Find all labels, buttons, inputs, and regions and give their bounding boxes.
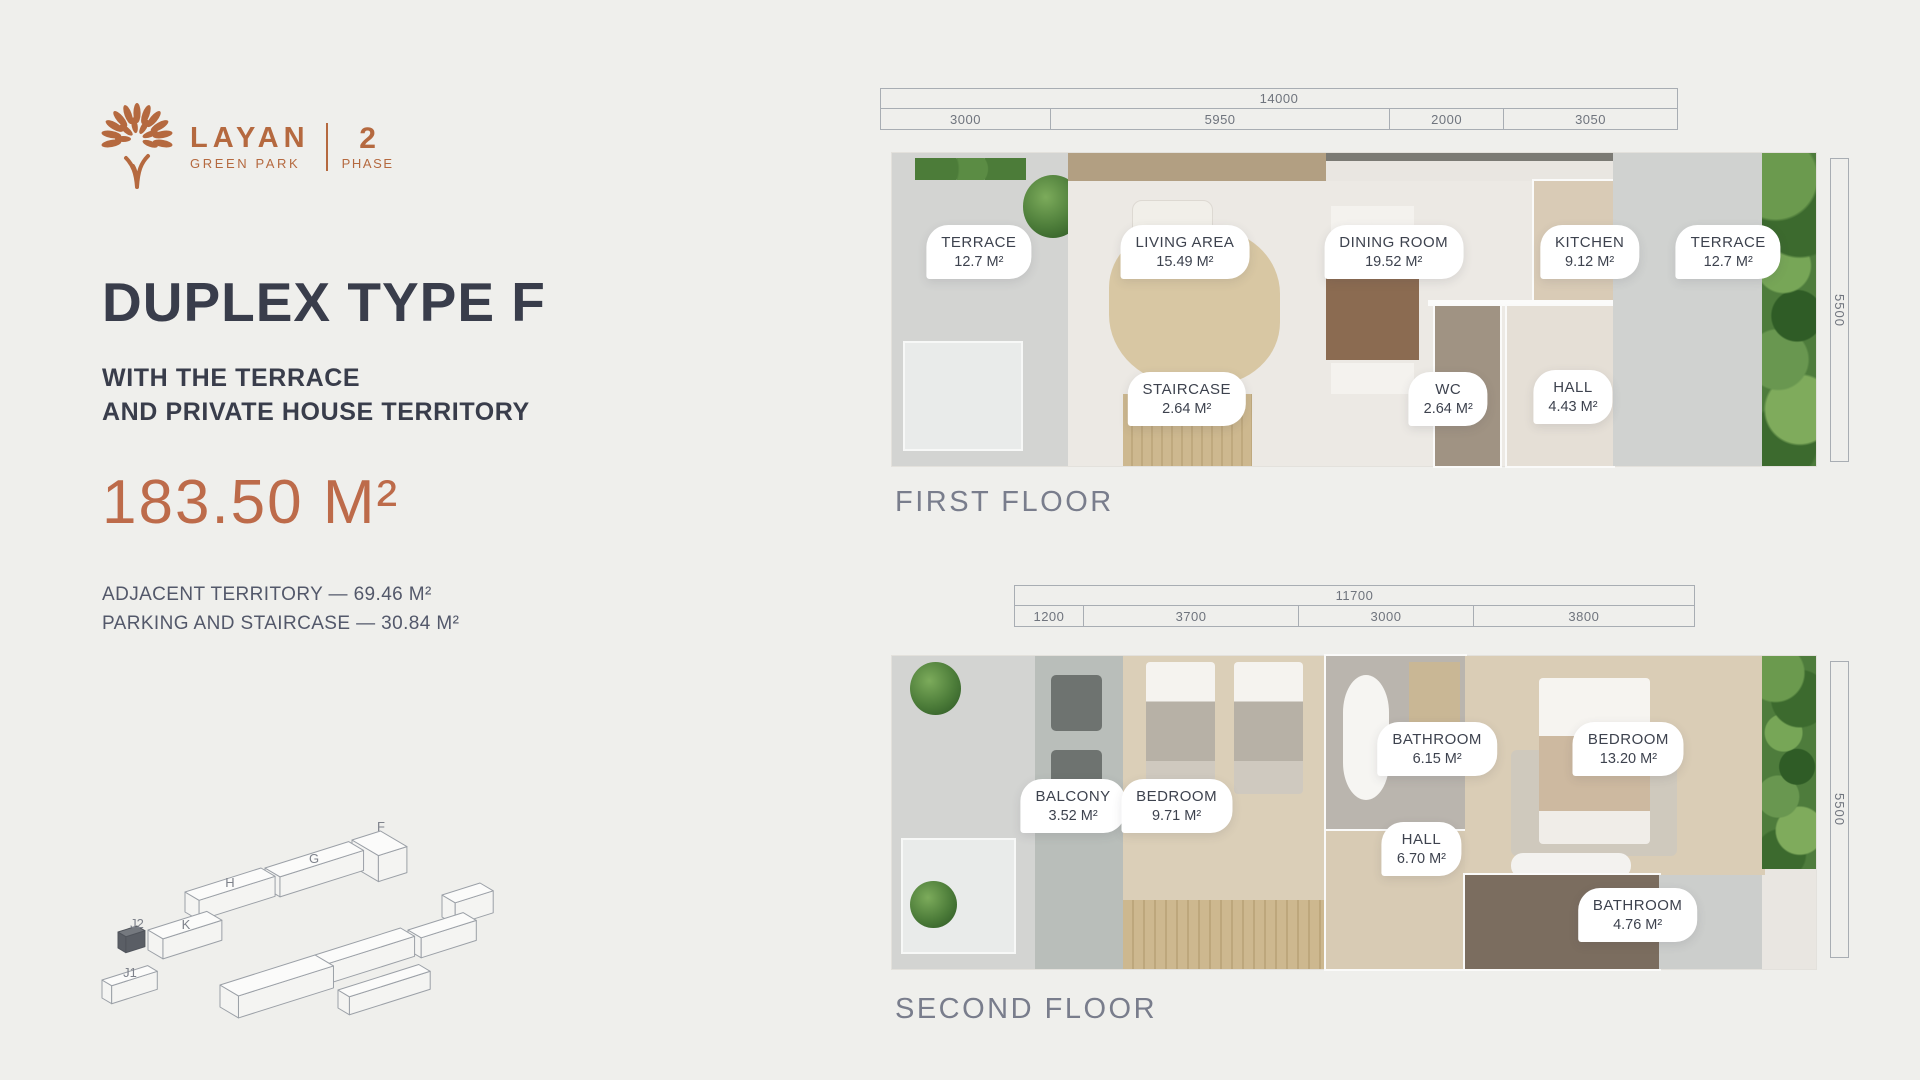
room-name: WC: [1424, 381, 1473, 398]
phase-number: 2: [359, 124, 376, 154]
tree-icon: [100, 103, 174, 191]
room-label: LIVING AREA 15.49 M²: [1120, 225, 1249, 279]
site-building-label: F: [377, 819, 385, 834]
room-area: 4.76 M²: [1593, 917, 1683, 933]
room-label: WC 2.64 M²: [1409, 372, 1488, 426]
site-building-label: J2: [130, 916, 144, 931]
area-details: ADJACENT TERRITORY — 69.46 M² PARKING AN…: [102, 580, 702, 638]
brand-subtitle: GREEN PARK: [190, 156, 310, 171]
room-name: LIVING AREA: [1135, 234, 1234, 251]
logo-divider: [326, 123, 328, 171]
room-name: STAIRCASE: [1143, 381, 1231, 398]
room-name: TERRACE: [941, 234, 1016, 251]
room-label: HALL 4.43 M²: [1533, 370, 1612, 424]
room-name: BATHROOM: [1392, 731, 1482, 748]
brand-title: LAYAN: [190, 123, 310, 153]
room-label: TERRACE 12.7 M²: [926, 225, 1031, 279]
dim-segment: 1200: [1014, 606, 1084, 627]
room-area: 4.43 M²: [1548, 399, 1597, 415]
room-name: KITCHEN: [1555, 234, 1624, 251]
room-area: 6.15 M²: [1392, 751, 1482, 767]
phase-label: PHASE: [342, 156, 394, 171]
room-name: BEDROOM: [1136, 788, 1217, 805]
page-title: DUPLEX TYPE F: [102, 270, 702, 334]
tree-trunk: [126, 156, 148, 187]
dim-segment: 3000: [880, 109, 1051, 130]
brand-name: LAYAN GREEN PARK: [190, 123, 310, 171]
room-label: BEDROOM 9.71 M²: [1121, 779, 1232, 833]
dim-segment: 3050: [1504, 109, 1678, 130]
site-building: [220, 955, 333, 1018]
room-label: DINING ROOM 19.52 M²: [1324, 225, 1463, 279]
second-floor-dimension-bar: 11700 1200370030003800: [1014, 585, 1695, 627]
room-name: HALL: [1397, 831, 1446, 848]
room-area: 9.12 M²: [1555, 254, 1624, 270]
dim-total: 14000: [880, 88, 1678, 109]
dim-segments: 3000595020003050: [880, 109, 1678, 130]
room-area: 9.71 M²: [1136, 808, 1217, 824]
dim-segment: 2000: [1390, 109, 1504, 130]
adjacent-territory: ADJACENT TERRITORY — 69.46 M²: [102, 580, 702, 609]
room-label: BEDROOM 13.20 M²: [1573, 722, 1684, 776]
site-building-label: K: [182, 917, 191, 932]
room-label: KITCHEN 9.12 M²: [1540, 225, 1639, 279]
room-area: 15.49 M²: [1135, 254, 1234, 270]
second-floor-plan: BATHROOM 6.15 M² BEDROOM 13.20 M² BALCON…: [892, 656, 1816, 969]
site-building: [408, 913, 476, 958]
page-subtitle: WITH THE TERRACE AND PRIVATE HOUSE TERRI…: [102, 361, 702, 429]
room-name: HALL: [1548, 379, 1597, 396]
site-building-g: [265, 842, 364, 897]
room-area: 12.7 M²: [1691, 254, 1766, 270]
dim-segment: 3700: [1084, 606, 1299, 627]
total-area: 183.50 M²: [102, 467, 702, 538]
room-labels: TERRACE 12.7 M² LIVING AREA 15.49 M² DIN…: [892, 153, 1816, 466]
dim-segment: 3000: [1299, 606, 1474, 627]
room-labels: BATHROOM 6.15 M² BEDROOM 13.20 M² BALCON…: [892, 656, 1816, 969]
hero-block: DUPLEX TYPE F WITH THE TERRACE AND PRIVA…: [102, 270, 702, 638]
room-area: 6.70 M²: [1397, 851, 1446, 867]
second-floor-side-dimension: 5500: [1830, 661, 1849, 958]
subtitle-line-2: AND PRIVATE HOUSE TERRITORY: [102, 395, 702, 429]
phase-badge: 2 PHASE: [342, 124, 394, 171]
room-area: 2.64 M²: [1143, 401, 1231, 417]
room-label: BATHROOM 6.15 M²: [1377, 722, 1497, 776]
room-label: BALCONY 3.52 M²: [1020, 779, 1125, 833]
site-map: FGHKJ2J1: [90, 800, 520, 1035]
room-name: DINING ROOM: [1339, 234, 1448, 251]
dim-segment: 3800: [1474, 606, 1695, 627]
first-floor-title: FIRST FLOOR: [895, 486, 1114, 519]
dim-total: 11700: [1014, 585, 1695, 606]
room-label: HALL 6.70 M²: [1382, 822, 1461, 876]
room-area: 3.52 M²: [1035, 808, 1110, 824]
brand-logo: LAYAN GREEN PARK 2 PHASE: [100, 103, 394, 191]
site-building-label: G: [309, 851, 319, 866]
room-name: BATHROOM: [1593, 897, 1683, 914]
room-area: 12.7 M²: [941, 254, 1016, 270]
site-building-label: H: [225, 875, 234, 890]
dim-segment: 5950: [1051, 109, 1390, 130]
room-label: BATHROOM 4.76 M²: [1578, 888, 1698, 942]
first-floor-side-dimension: 5500: [1830, 158, 1849, 462]
room-area: 19.52 M²: [1339, 254, 1448, 270]
second-floor-title: SECOND FLOOR: [895, 993, 1157, 1026]
page: LAYAN GREEN PARK 2 PHASE DUPLEX TYPE F W…: [0, 0, 1920, 1080]
room-area: 13.20 M²: [1588, 751, 1669, 767]
subtitle-line-1: WITH THE TERRACE: [102, 361, 702, 395]
room-label: STAIRCASE 2.64 M²: [1128, 372, 1246, 426]
parking-staircase: PARKING AND STAIRCASE — 30.84 M²: [102, 609, 702, 638]
first-floor-dimension-bar: 14000 3000595020003050: [880, 88, 1678, 130]
room-name: BALCONY: [1035, 788, 1110, 805]
room-name: TERRACE: [1691, 234, 1766, 251]
room-label: TERRACE 12.7 M²: [1676, 225, 1781, 279]
room-name: BEDROOM: [1588, 731, 1669, 748]
first-floor-plan: TERRACE 12.7 M² LIVING AREA 15.49 M² DIN…: [892, 153, 1816, 466]
site-building-label: J1: [123, 965, 137, 980]
dim-segments: 1200370030003800: [1014, 606, 1695, 627]
room-area: 2.64 M²: [1424, 401, 1473, 417]
